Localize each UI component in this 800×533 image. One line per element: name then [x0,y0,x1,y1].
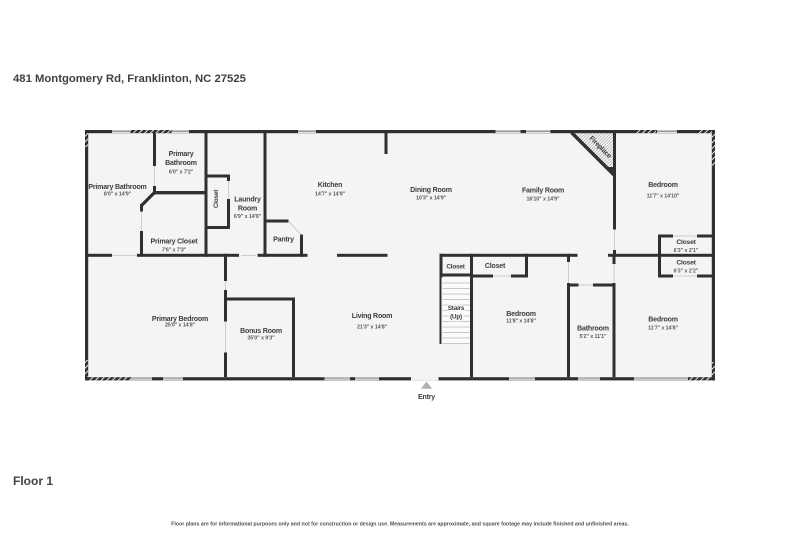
svg-text:(Up): (Up) [450,313,462,320]
svg-text:Pantry: Pantry [273,237,294,244]
svg-text:Bedroom: Bedroom [506,311,536,318]
svg-text:481 Montgomery Rd, Franklinton: 481 Montgomery Rd, Franklinton, NC 27525 [13,73,246,85]
svg-text:Closet: Closet [446,264,465,271]
svg-text:Bedroom: Bedroom [648,182,678,189]
svg-text:Stairs: Stairs [448,305,465,312]
svg-text:Primary: Primary [169,151,194,158]
svg-text:6'9" x 14'9": 6'9" x 14'9" [234,214,262,220]
svg-text:8'0" x 14'9": 8'0" x 14'9" [104,192,132,198]
svg-text:Bathroom: Bathroom [165,160,197,167]
svg-text:5'2" x 11'1": 5'2" x 11'1" [580,334,607,340]
svg-text:Closet: Closet [485,263,506,270]
svg-text:Room: Room [238,206,257,213]
svg-text:21'3" x 14'8": 21'3" x 14'8" [357,325,388,331]
svg-text:Primary Bathroom: Primary Bathroom [88,184,146,191]
svg-text:Family Room: Family Room [522,188,564,195]
svg-text:Living Room: Living Room [352,313,392,320]
svg-text:11'7" x 14'8": 11'7" x 14'8" [648,326,678,332]
svg-text:7'6" x 7'3": 7'6" x 7'3" [162,248,187,254]
svg-text:14'7" x 14'9": 14'7" x 14'9" [315,192,346,198]
svg-text:Primary Closet: Primary Closet [151,239,199,246]
svg-text:Bonus Room: Bonus Room [240,328,282,335]
svg-text:25'0" x 14'8": 25'0" x 14'8" [165,322,196,328]
svg-text:Laundry: Laundry [234,197,261,204]
svg-text:6'3" x 2'2": 6'3" x 2'2" [674,269,699,275]
svg-text:10'3" x 14'9": 10'3" x 14'9" [416,196,447,202]
svg-text:Closet: Closet [213,189,220,208]
svg-text:Entry: Entry [418,394,435,401]
svg-text:16'10" x 14'9": 16'10" x 14'9" [527,197,561,203]
svg-text:6'0" x 7'2": 6'0" x 7'2" [169,170,194,176]
svg-text:Closet: Closet [676,260,696,267]
svg-text:Dining Room: Dining Room [410,187,452,194]
svg-text:Floor plans are for informatio: Floor plans are for informational purpos… [171,522,629,528]
svg-text:Bedroom: Bedroom [648,317,678,324]
svg-text:Closet: Closet [676,239,696,246]
svg-text:6'3" x 2'1": 6'3" x 2'1" [674,248,699,254]
svg-text:11'7" x 14'10": 11'7" x 14'10" [647,194,680,200]
svg-text:Floor 1: Floor 1 [13,474,53,488]
svg-text:11'8" x 14'8": 11'8" x 14'8" [506,319,536,325]
svg-text:35'0" x 9'3": 35'0" x 9'3" [247,336,275,342]
svg-text:Kitchen: Kitchen [318,182,342,189]
svg-text:Bathroom: Bathroom [577,326,609,333]
